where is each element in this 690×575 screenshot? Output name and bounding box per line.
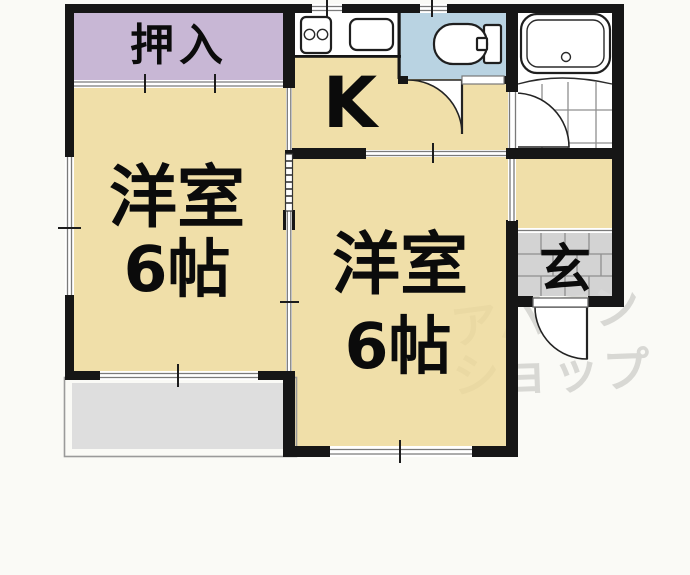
western-room-2-label: 洋室 [332, 226, 468, 305]
stove-burners-icon [301, 17, 331, 53]
balcony [65, 378, 297, 457]
entrance-label: 玄 [539, 240, 591, 300]
counter-front-edge [293, 55, 401, 58]
floor-plan-canvas: アパマン ショップ [0, 0, 690, 575]
closet-label: 押入 [130, 20, 228, 71]
western-room-1-label: 洋室 [109, 159, 245, 238]
western-room-1-size: 6帖 [124, 233, 231, 306]
floor-plan-image: アパマン ショップ [0, 0, 690, 575]
western-room-2-size: 6帖 [345, 310, 452, 383]
counter-edge [398, 13, 401, 79]
kitchen-label: K [323, 62, 380, 144]
corridor-floor [516, 158, 614, 230]
bathtub-icon [521, 14, 610, 73]
sliding-panel-hatched [285, 150, 293, 211]
toilet-icon [434, 24, 501, 64]
watermark-line2: ショップ [452, 343, 654, 405]
kitchen-sink-icon [350, 19, 393, 50]
